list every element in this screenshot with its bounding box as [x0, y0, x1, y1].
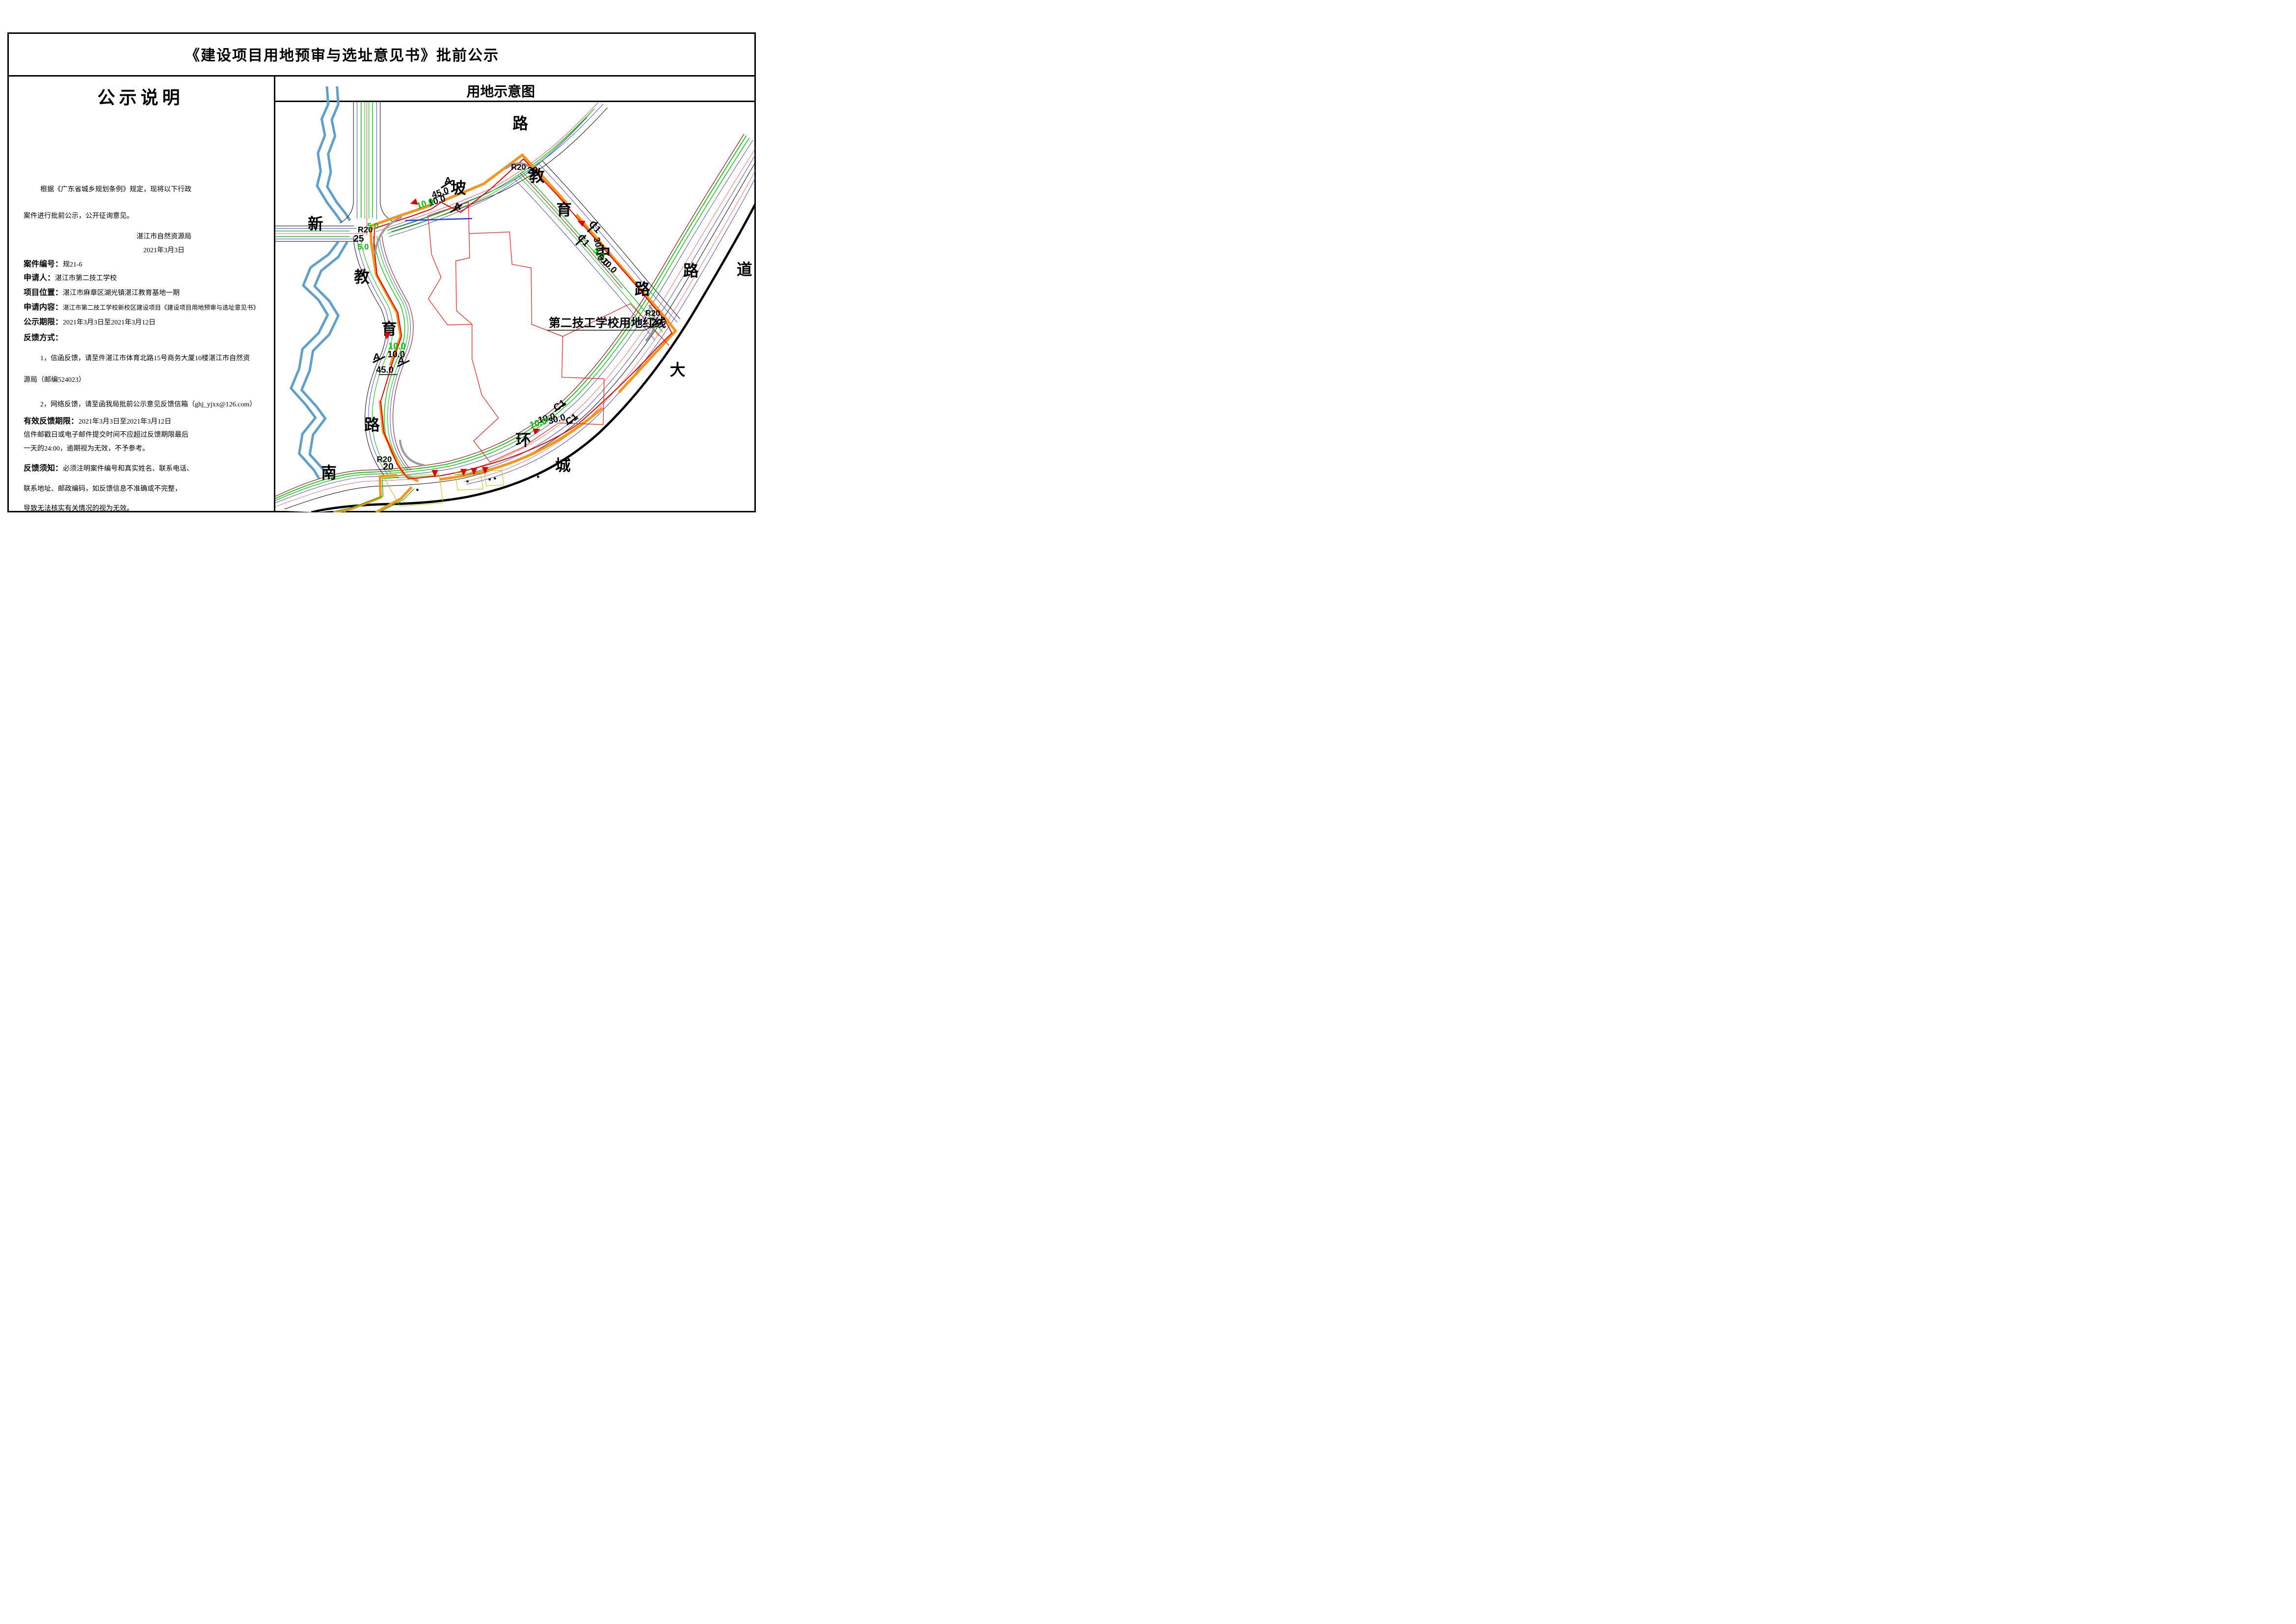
panel-heading: 公示说明: [7, 83, 274, 109]
notice-field-label: 案件编号：: [24, 260, 63, 268]
road-name-label: 新: [308, 215, 323, 233]
notice-line-3: 2021年3月3日: [7, 246, 274, 255]
notice-text: 源局（邮编524023）: [24, 376, 85, 384]
map-title: 用地示意图: [467, 83, 535, 99]
notice-line-17: 联系地址、邮政编码，如反馈信息不准确或不完整，: [24, 485, 182, 494]
dimension-label: C1: [552, 398, 568, 414]
notice-line-14: 信件邮戳日或电子邮件提交时间不应超过反馈期限最后: [24, 431, 188, 440]
road-name-label: 路: [364, 416, 380, 433]
notice-text: 信件邮戳日或电子邮件提交时间不应超过反馈期限最后: [24, 431, 188, 439]
notice-text: 湛江市麻章区湖光镇湛江教育基地一期: [63, 290, 180, 297]
notice-text: 2，网络反馈，请至函我局批前公示意见反馈信箱（ghj_yjxx@126.com）: [40, 401, 256, 408]
road-name-label: 坡: [451, 179, 466, 197]
notice-line-6: 项目位置：湛江市麻章区湖光镇湛江教育基地一期: [24, 289, 180, 298]
road-name-label: 路: [635, 280, 650, 298]
notice-text: 导致无法核实有关情况的视为无效。: [24, 505, 133, 512]
dimension-label: 5.0: [357, 242, 369, 252]
dimension-label: 45.0: [376, 365, 394, 375]
road-name-label: 环: [515, 431, 531, 449]
notice-line-12: 2，网络反馈，请至函我局批前公示意见反馈信箱（ghj_yjxx@126.com）: [24, 400, 256, 409]
dimension-label: 10.0: [528, 416, 548, 430]
notice-text: 湛江市自然资源局: [136, 233, 191, 240]
notice-line-4: 案件编号：规21-6: [24, 260, 82, 269]
notice-line-18: 导致无法核实有关情况的视为无效。: [24, 505, 133, 513]
title-bar: 《建设项目用地预审与选址意见书》批前公示: [7, 32, 756, 77]
notice-line-13: 有效反馈期限：2021年3月3日至2021年3月12日: [24, 417, 171, 426]
dimension-label: A: [444, 175, 452, 186]
map-labels: 新路坡教育中路路道大环城南教育路A45.0A10.010.010.010.0AA…: [308, 114, 752, 481]
road-name-label: 大: [670, 361, 686, 379]
notice-field-label: 有效反馈期限：: [24, 417, 79, 426]
notice-text: 湛江市第二技工学校新校区建设项目《建设项目用地预审与选址意见书》: [63, 304, 259, 311]
redline-label: 第二技工学校用地红线: [549, 316, 666, 330]
notice-line-7: 申请内容：湛江市第二技工学校新校区建设项目《建设项目用地预审与选址意见书》: [24, 303, 259, 312]
notice-text: 根据《广东省城乡规划条例》规定，现将以下行政: [40, 186, 191, 193]
notice-line-2: 湛江市自然资源局: [7, 233, 274, 241]
parcel-dots: [416, 476, 539, 491]
notice-line-0: 根据《广东省城乡规划条例》规定，现将以下行政: [24, 186, 191, 194]
notice-line-11: 源局（邮编524023）: [24, 376, 85, 385]
notice-text: 规21-6: [63, 261, 82, 268]
road-name-label: 路: [512, 114, 528, 132]
dimension-label: A: [398, 355, 405, 366]
road-name-label: 城: [555, 456, 571, 474]
road-name-label: 育: [556, 201, 572, 218]
land-use-map: 新路坡教育中路路道大环城南教育路A45.0A10.010.010.010.0AA…: [275, 77, 756, 512]
notice-field-label: 申请内容：: [24, 303, 63, 312]
internal-red-parcels: [428, 202, 669, 462]
map-canvas: 新路坡教育中路路道大环城南教育路A45.0A10.010.010.010.0AA…: [275, 77, 756, 512]
dimension-label: R20: [511, 162, 526, 172]
notice-text: 2021年3月3日: [143, 247, 185, 254]
notice-text: 2021年3月3日至2021年3月12日: [63, 319, 156, 326]
notice-line-5: 申请人：湛江市第二技工学校: [24, 274, 117, 283]
road-name-label: 道: [737, 261, 752, 278]
notice-text: 2021年3月3日至2021年3月12日: [79, 418, 171, 426]
notice-panel: 公示说明 根据《广东省城乡规划条例》规定，现将以下行政案件进行批前公示，公开征询…: [7, 77, 275, 512]
dimension-label: 20: [383, 462, 393, 472]
dimension-label: A: [373, 351, 380, 363]
road-name-label: 教: [354, 268, 370, 286]
dimension-label: 5.0: [367, 221, 378, 231]
notice-line-16: 反馈须知：必须注明案件编号和真实姓名、联系电话、: [24, 464, 193, 474]
notice-line-1: 案件进行批前公示，公开征询意见。: [24, 212, 133, 221]
dimension-label: A: [454, 201, 461, 212]
notice-text: 案件进行批前公示，公开征询意见。: [24, 213, 133, 220]
notice-line-15: 一天的24:00，逾期视为无效，不予参考。: [24, 445, 149, 453]
notice-field-label: 反馈方式：: [24, 334, 63, 342]
dimension-label: R20: [645, 309, 660, 318]
dimension-label: 20: [528, 166, 538, 176]
notice-text: 必须注明案件编号和真实姓名、联系电话、: [63, 465, 193, 473]
notice-text: 一天的24:00，逾期视为无效，不予参考。: [24, 445, 149, 453]
river: [291, 86, 350, 512]
notice-field-label: 反馈须知：: [24, 464, 63, 473]
notice-field-label: 申请人：: [24, 274, 55, 282]
page-title: 《建设项目用地预审与选址意见书》批前公示: [7, 43, 499, 65]
notice-field-label: 公示期限：: [24, 318, 63, 326]
notice-line-10: 1，信函反馈，请至件湛江市体育北路15号商务大厦10楼湛江市自然资: [24, 354, 250, 363]
road-name-label: 南: [321, 464, 337, 481]
notice-field-label: 项目位置：: [24, 289, 63, 297]
notice-text: 联系地址、邮政编码，如反馈信息不准确或不完整，: [24, 485, 182, 493]
notice-text: 1，信函反馈，请至件湛江市体育北路15号商务大厦10楼湛江市自然资: [40, 355, 250, 362]
notice-line-8: 公示期限：2021年3月3日至2021年3月12日: [24, 318, 156, 327]
road-name-label: 路: [683, 262, 699, 279]
road-north: [340, 102, 394, 235]
notice-page: 《建设项目用地预审与选址意见书》批前公示 公示说明 根据《广东省城乡规划条例》规…: [0, 0, 765, 541]
notice-text: 湛江市第二技工学校: [55, 275, 117, 282]
notice-line-9: 反馈方式：: [24, 334, 63, 343]
